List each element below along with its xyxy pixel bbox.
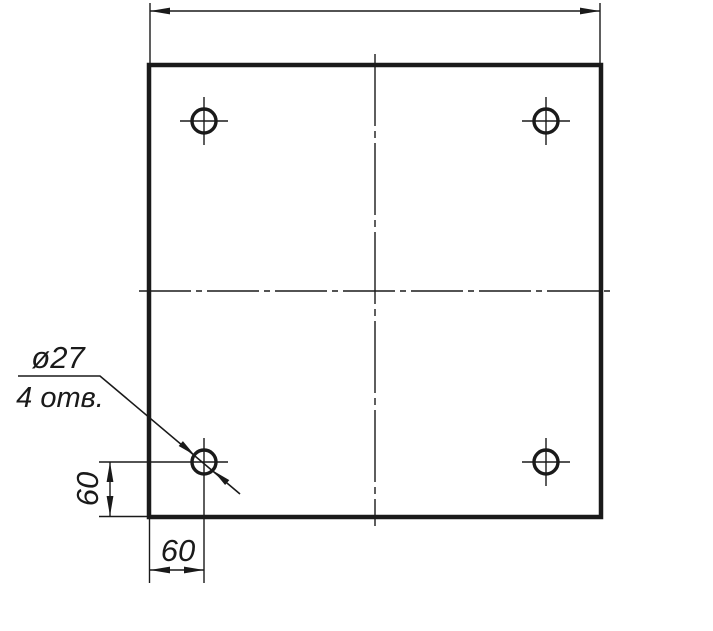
dimension-hole-offset-vertical: 60 xyxy=(70,462,149,517)
drawing-canvas: 60 60 ø27 4 отв. xyxy=(0,0,713,631)
plate-drawing: 60 60 ø27 4 отв. xyxy=(0,0,713,631)
leader-arrowhead-upper xyxy=(179,441,195,455)
dimension-value-vertical: 60 xyxy=(70,472,105,506)
hole-count-label: 4 отв. xyxy=(16,382,104,414)
arrowhead-left xyxy=(150,8,170,15)
hole-top-left xyxy=(180,97,228,145)
arrowhead-right xyxy=(580,8,600,15)
hole-top-right xyxy=(522,97,570,145)
leader-note-holes: ø27 4 отв. xyxy=(16,340,240,494)
arrowhead-up xyxy=(107,462,114,482)
hole-diameter-label: ø27 xyxy=(31,340,86,375)
dimension-value-horizontal: 60 xyxy=(161,533,195,568)
dimension-hole-offset-horizontal: 60 xyxy=(150,517,205,583)
hole-bottom-right xyxy=(522,438,570,486)
arrowhead-down xyxy=(107,496,114,516)
